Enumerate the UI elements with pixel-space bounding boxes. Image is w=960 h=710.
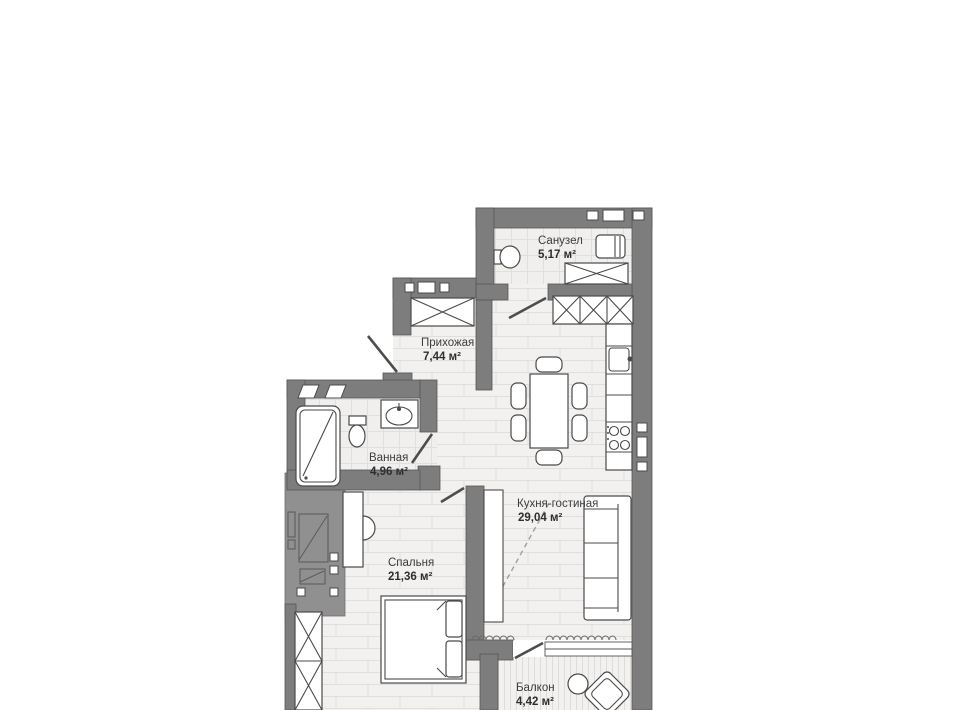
floor-plan-svg: Санузел 5,17 м² Прихожая 7,44 м² Ванная … xyxy=(0,0,960,710)
room-label-kitchen-area: 29,04 м² xyxy=(518,512,562,524)
dining-chair xyxy=(572,383,587,409)
kitchen-sink-tap xyxy=(628,357,633,362)
dining-chair xyxy=(511,383,526,409)
vent-icon xyxy=(633,211,644,220)
hall-furniture xyxy=(411,298,474,326)
outlet-icon xyxy=(330,553,338,561)
toilet-icon xyxy=(500,246,520,268)
bathtub-icon xyxy=(296,406,340,486)
wall-sanuzel-bottom-left xyxy=(476,284,508,300)
toilet-tank-icon xyxy=(349,416,366,425)
dining-chair xyxy=(536,450,562,465)
sofa xyxy=(584,496,631,620)
room-label-prihozhaya-area: 7,44 м² xyxy=(423,351,461,363)
floor-plan-canvas: Санузел 5,17 м² Прихожая 7,44 м² Ванная … xyxy=(0,0,960,710)
room-label-spalnya-name: Спальня xyxy=(388,557,434,569)
wall-bathroom-right-stub xyxy=(420,380,437,432)
washing-machine-icon xyxy=(596,235,625,258)
vent-icon xyxy=(603,210,624,221)
pillow xyxy=(446,641,462,677)
dining-table xyxy=(530,374,568,448)
outlet-icon xyxy=(330,588,338,596)
wall-sanuzel-top xyxy=(476,208,652,228)
room-label-sanuzel-name: Санузел xyxy=(538,235,583,247)
vent-icon xyxy=(405,283,414,292)
socket-icon xyxy=(637,437,647,457)
wall-bathroom-corner xyxy=(418,466,440,490)
room-label-prihozhaya-name: Прихожая xyxy=(421,337,474,349)
wall-bedroom-left xyxy=(285,604,296,710)
balcony-table xyxy=(568,674,588,694)
vent-icon xyxy=(418,282,435,293)
vent-icon xyxy=(440,283,449,292)
wall-hall-kitchen-divider xyxy=(476,300,492,390)
sliding-door-panel xyxy=(484,490,503,622)
vent-icon xyxy=(587,211,598,220)
socket-icon xyxy=(637,423,647,432)
room-label-sanuzel-area: 5,17 м² xyxy=(538,249,576,261)
room-label-balkon-name: Балкон xyxy=(516,682,555,694)
wall-bedroom-kitchen-partition xyxy=(466,486,484,656)
socket-icon xyxy=(637,462,647,471)
dining-chair xyxy=(536,357,562,372)
dining-chair xyxy=(511,415,526,441)
bathroom-sink-tap-dot xyxy=(397,407,401,411)
bedroom-closet-icon xyxy=(343,492,363,567)
room-label-spalnya-area: 21,36 м² xyxy=(388,571,432,583)
toilet-icon xyxy=(349,425,365,447)
bathtub-drain xyxy=(304,476,307,479)
wall-right-outer xyxy=(632,208,652,710)
outlet-icon xyxy=(297,588,305,596)
outlet-icon xyxy=(330,566,338,574)
room-label-balkon-area: 4,42 м² xyxy=(516,696,554,708)
room-label-kitchen-name: Кухня-гостиная xyxy=(517,498,598,510)
room-label-vannaya-name: Ванная xyxy=(369,452,408,464)
pillow xyxy=(446,601,462,637)
room-label-vannaya-area: 4,96 м² xyxy=(370,466,408,478)
dining-chair xyxy=(572,415,587,441)
balcony-opening xyxy=(513,641,632,658)
wall-balcony-left xyxy=(480,654,498,710)
